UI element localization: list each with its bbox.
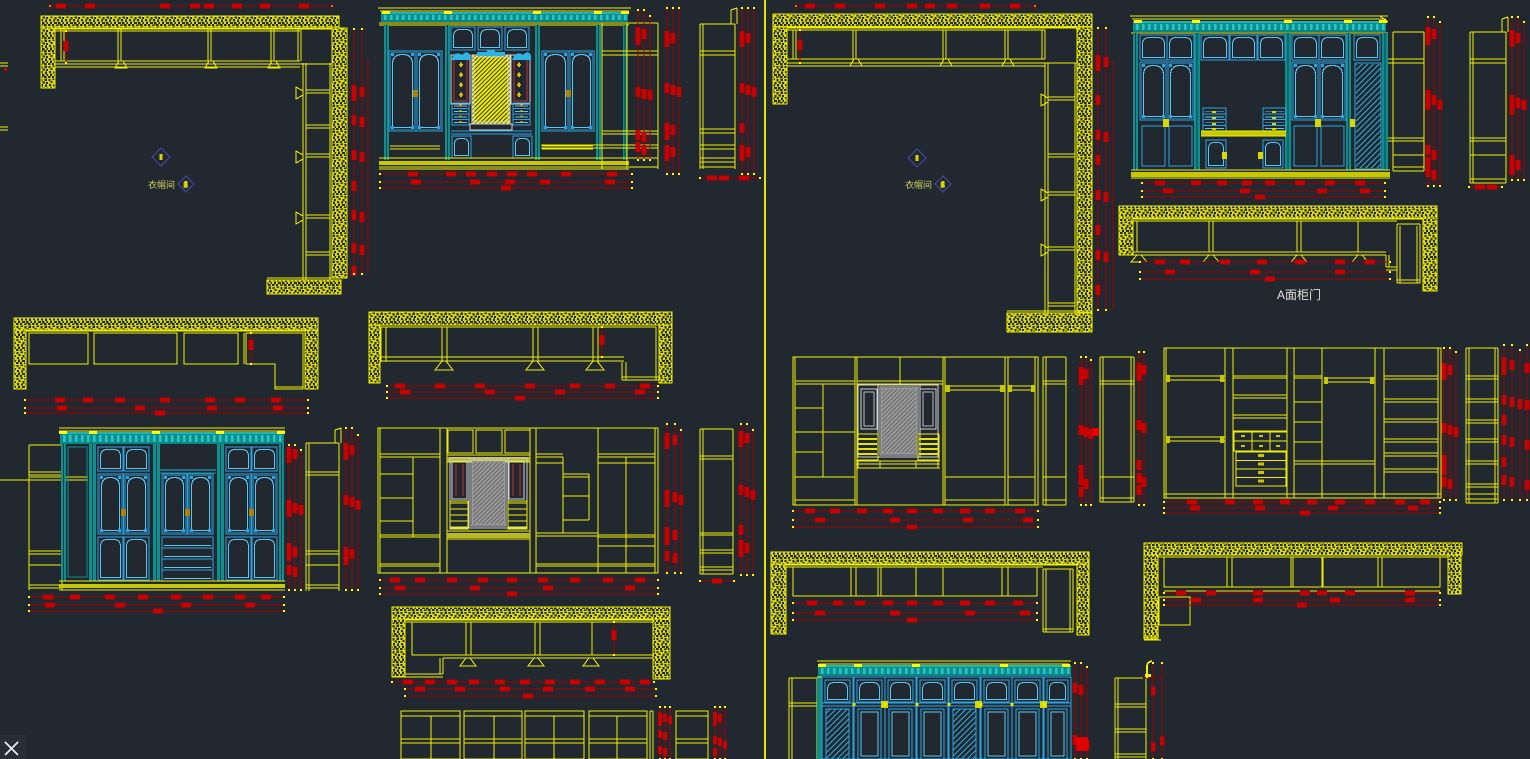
svg-text:B: B [940,181,945,190]
svg-text:衣帽间: 衣帽间 [905,179,932,190]
svg-text:B: B [183,181,188,190]
svg-text:衣帽间: 衣帽间 [148,179,175,190]
svg-text:A面柜门: A面柜门 [1277,287,1321,302]
